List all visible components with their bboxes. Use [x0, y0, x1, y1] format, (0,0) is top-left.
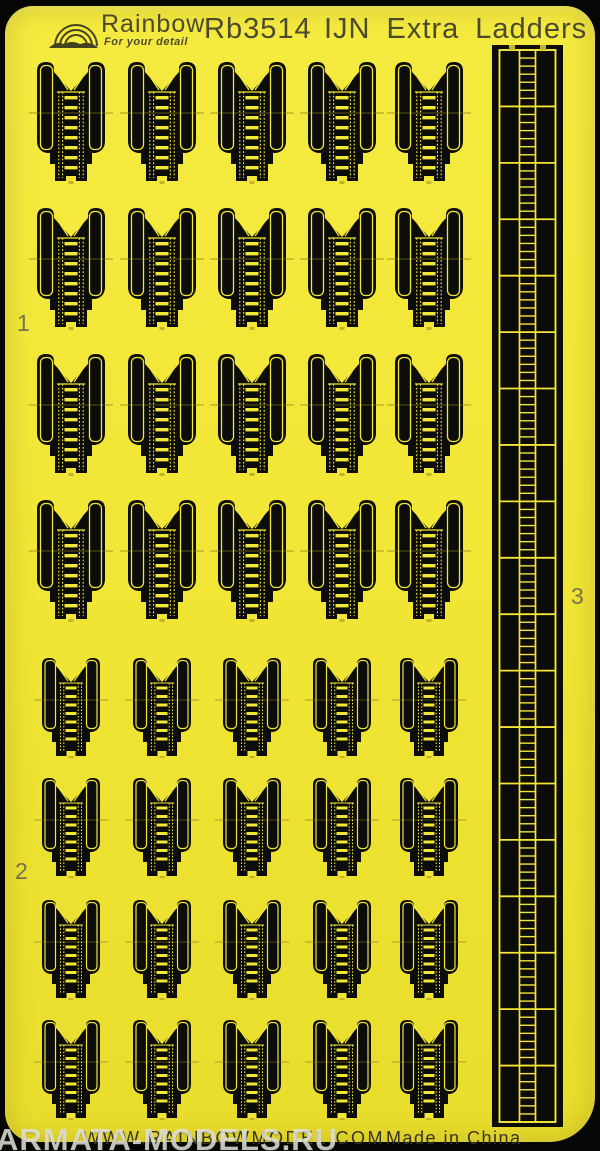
ladder-strip [492, 45, 563, 1127]
ladder-part-small [220, 1018, 284, 1120]
ladder-part-large [305, 206, 379, 330]
ladder-part-large [125, 206, 199, 330]
ladder-part-small [220, 776, 284, 878]
ladder-part-small [397, 776, 461, 878]
ladder-part-large [215, 60, 289, 184]
ladder-part-large [34, 352, 108, 476]
ladder-part-small [220, 656, 284, 758]
ladder-part-large [34, 206, 108, 330]
ladder-part-small [130, 898, 194, 1000]
footer-origin: Made in China [386, 1128, 522, 1149]
ladder-part-small [130, 1018, 194, 1120]
ladder-part-small [397, 898, 461, 1000]
ladder-part-small [397, 656, 461, 758]
ladder-part-large [34, 498, 108, 622]
ladder-part-small [310, 656, 374, 758]
ladder-part-small [39, 776, 103, 878]
ladder-part-small [39, 898, 103, 1000]
ladder-part-small [397, 1018, 461, 1120]
ladder-part-large [305, 498, 379, 622]
ladder-part-small [220, 898, 284, 1000]
ladder-part-small [310, 776, 374, 878]
ladder-part-large [215, 352, 289, 476]
ladder-part-large [125, 352, 199, 476]
ladder-part-large [125, 60, 199, 184]
ladder-part-large [305, 60, 379, 184]
ladder-part-small [310, 898, 374, 1000]
ladder-part-large [125, 498, 199, 622]
ladder-strip-svg [492, 45, 563, 1127]
watermark-text: ARMATA-MODELS.RU [0, 1122, 338, 1151]
ladder-part-small [130, 776, 194, 878]
ladder-part-large [392, 206, 466, 330]
ladder-part-large [392, 60, 466, 184]
ladder-part-large [392, 352, 466, 476]
ladder-part-large [215, 206, 289, 330]
ladder-part-large [392, 498, 466, 622]
ladder-part-small [39, 656, 103, 758]
ladder-part-small [310, 1018, 374, 1120]
ladder-part-large [305, 352, 379, 476]
ladder-part-large [215, 498, 289, 622]
ladder-part-small [39, 1018, 103, 1120]
photo-background: Rainbow For your detail Rb3514 IJN Extra… [0, 0, 600, 1151]
ladder-part-large [34, 60, 108, 184]
ladder-part-small [130, 656, 194, 758]
